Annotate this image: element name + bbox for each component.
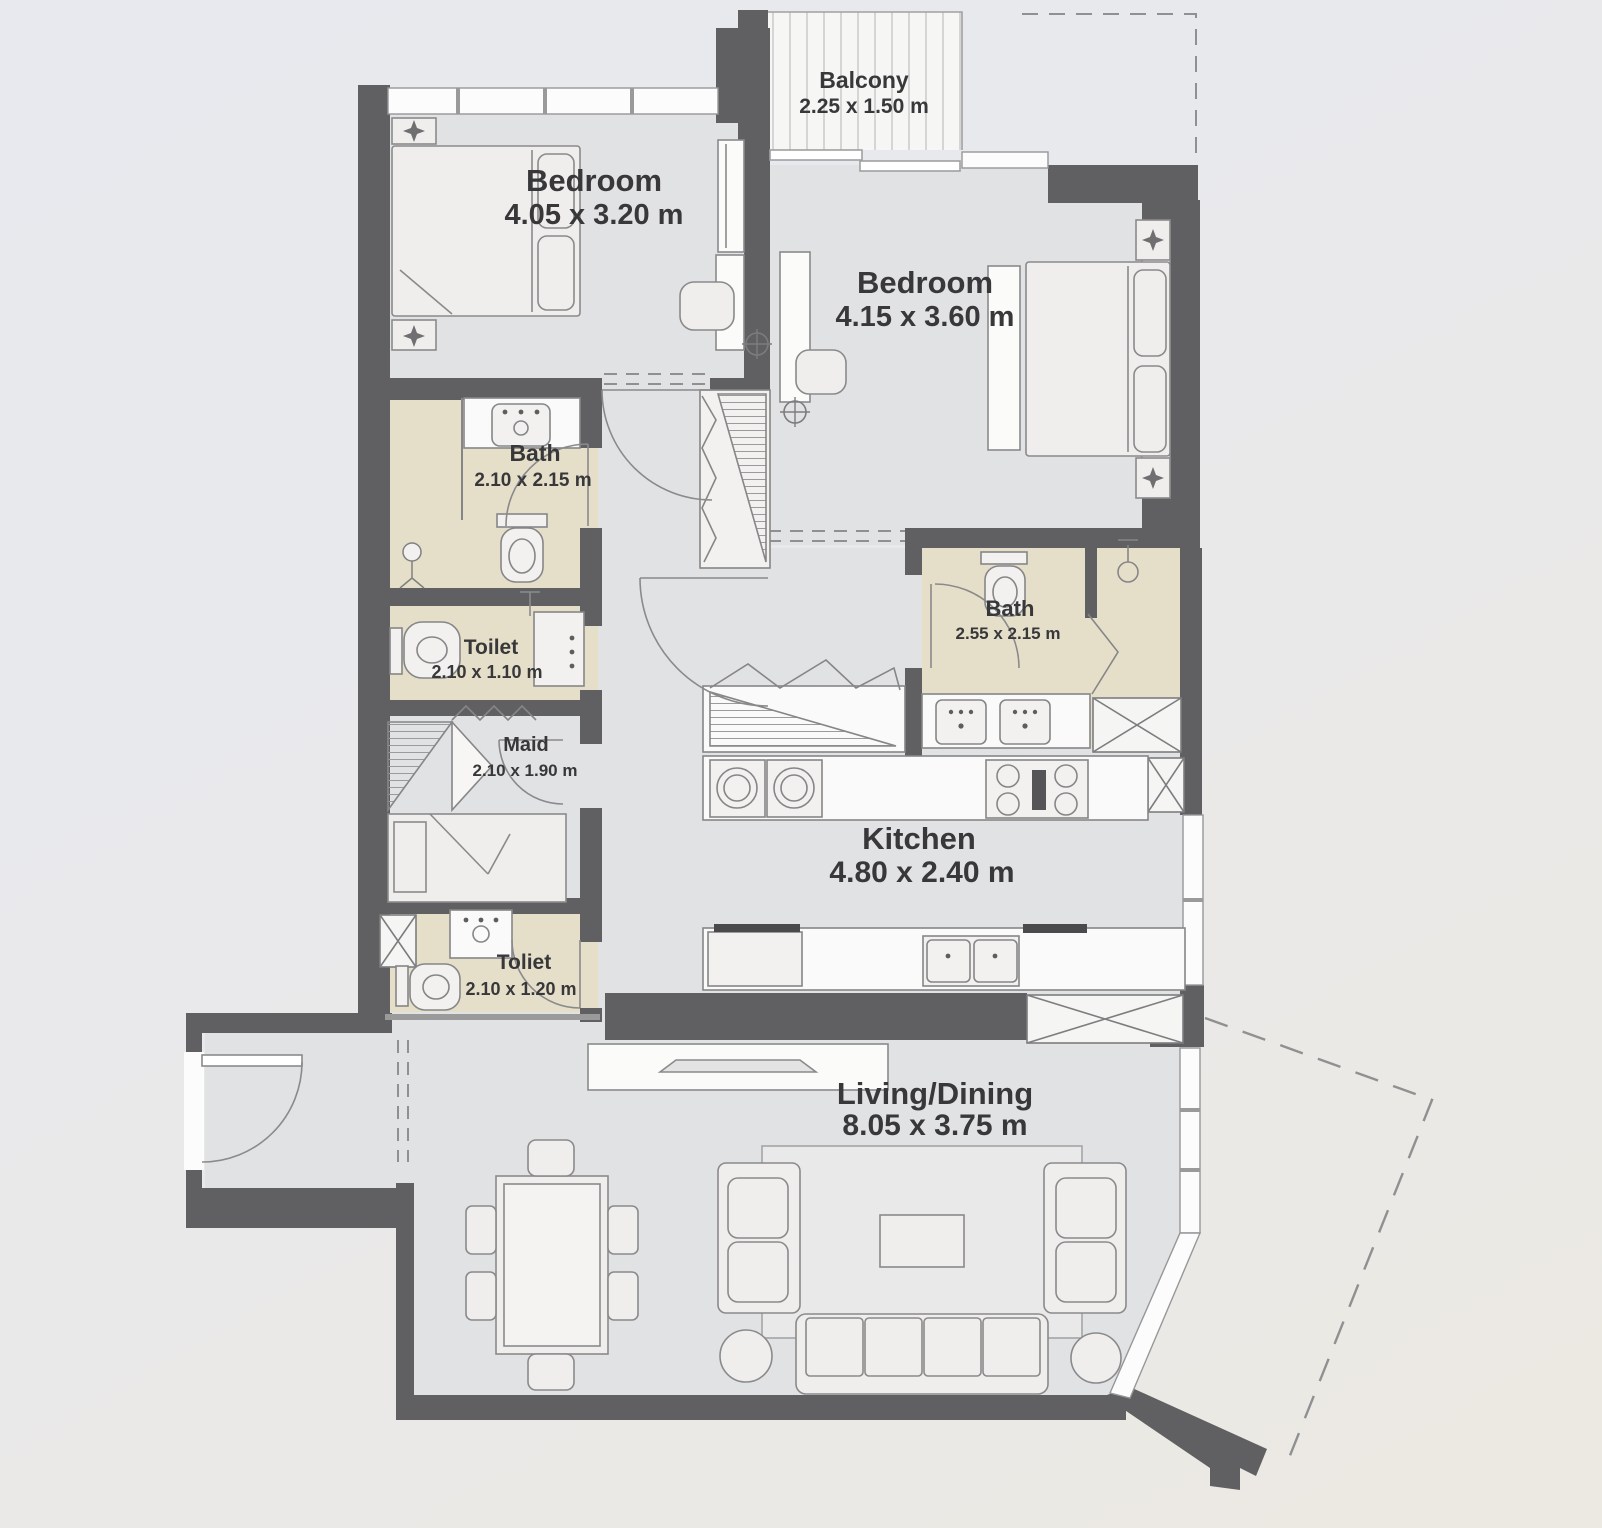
room-dims-bath-2: 2.55 x 2.15 m — [956, 624, 1061, 643]
room-name-bath-1: Bath — [509, 440, 560, 466]
room-dims-maid: 2.10 x 1.90 m — [473, 761, 578, 780]
room-dims-toilet-1: 2.10 x 1.10 m — [431, 662, 542, 682]
room-dims-bedroom-1: 4.05 x 3.20 m — [505, 199, 684, 231]
room-dims-bath-1: 2.10 x 2.15 m — [474, 470, 591, 491]
room-dims-bedroom-2: 4.15 x 3.60 m — [836, 301, 1015, 333]
toliet-partition — [385, 1014, 600, 1020]
room-name-maid: Maid — [503, 734, 549, 756]
room-dims-balcony: 2.25 x 1.50 m — [799, 95, 929, 118]
room-dims-kitchen: 4.80 x 2.40 m — [829, 856, 1014, 889]
floor-plan: Bedroom 4.05 x 3.20 m Bedroom 4.15 x 3.6… — [0, 0, 1602, 1528]
room-dims-living-dining: 8.05 x 3.75 m — [842, 1109, 1027, 1142]
room-name-bedroom-2: Bedroom — [857, 265, 993, 300]
room-name-bedroom-1: Bedroom — [526, 163, 662, 198]
floor-plan-page: Bedroom 4.05 x 3.20 m Bedroom 4.15 x 3.6… — [0, 0, 1602, 1528]
room-name-living-dining: Living/Dining — [837, 1076, 1033, 1111]
room-name-balcony: Balcony — [819, 67, 909, 93]
room-name-toilet-2: Toliet — [497, 951, 551, 974]
room-dims-toilet-2: 2.10 x 1.20 m — [465, 979, 576, 999]
room-name-kitchen: Kitchen — [862, 821, 976, 856]
room-name-bath-2: Bath — [986, 596, 1035, 621]
room-name-toilet-1: Toilet — [464, 636, 518, 659]
